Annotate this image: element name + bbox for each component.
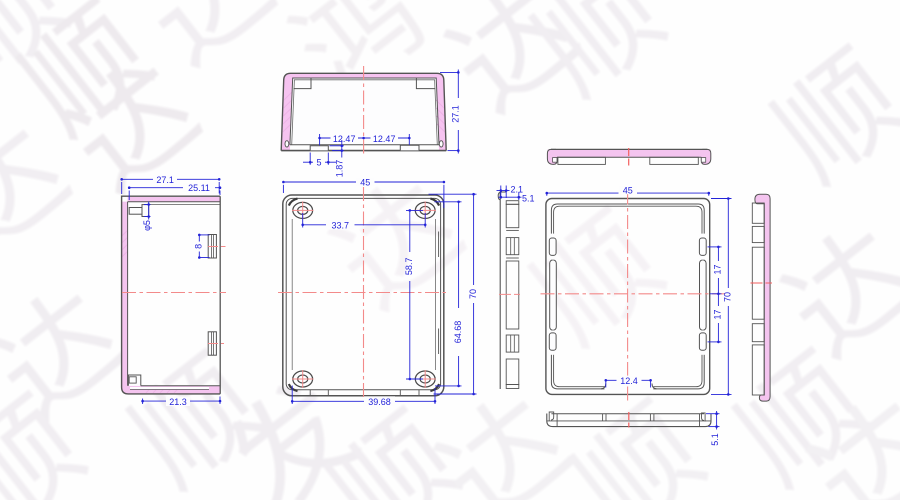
svg-text:33.7: 33.7 <box>332 220 350 230</box>
svg-text:27.1: 27.1 <box>156 175 174 185</box>
svg-text:45: 45 <box>360 178 370 188</box>
svg-text:17: 17 <box>712 264 722 274</box>
svg-text:21.3: 21.3 <box>169 397 187 407</box>
svg-text:5.1: 5.1 <box>522 194 535 204</box>
svg-text:58.7: 58.7 <box>404 258 414 276</box>
svg-text:27.1: 27.1 <box>450 105 460 123</box>
svg-text:64.68: 64.68 <box>453 321 463 344</box>
svg-text:5.1: 5.1 <box>710 433 720 446</box>
svg-text:8: 8 <box>194 244 204 249</box>
svg-text:17: 17 <box>712 309 722 319</box>
svg-text:12.47: 12.47 <box>373 134 396 144</box>
svg-text:70: 70 <box>468 289 478 299</box>
svg-text:1.87: 1.87 <box>334 160 344 178</box>
svg-text:12.4: 12.4 <box>620 376 638 386</box>
svg-text:12.47: 12.47 <box>333 134 356 144</box>
svg-text:25.11: 25.11 <box>188 183 210 193</box>
svg-text:45: 45 <box>623 185 633 195</box>
svg-text:φ5: φ5 <box>142 220 152 231</box>
svg-text:5: 5 <box>316 158 321 168</box>
svg-text:39.68: 39.68 <box>368 397 391 407</box>
svg-text:70: 70 <box>723 292 733 302</box>
